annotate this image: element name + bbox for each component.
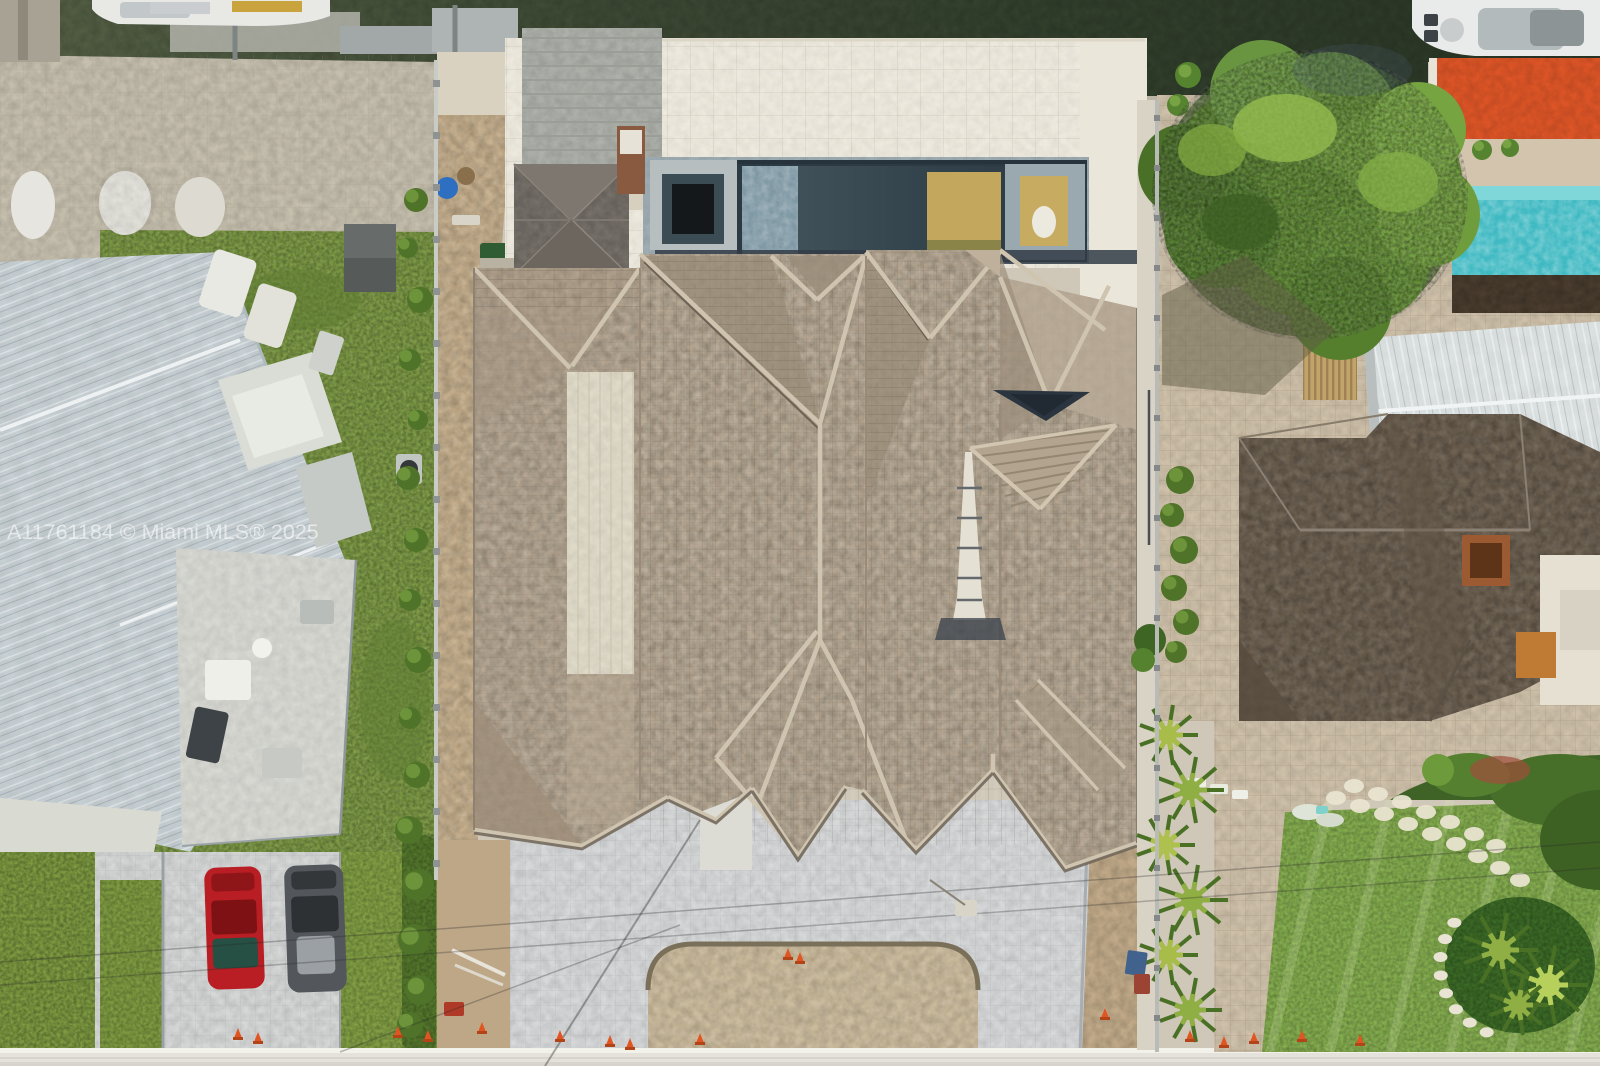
svg-text:A11761184 © Miami MLS® 2025: A11761184 © Miami MLS® 2025 xyxy=(7,520,319,544)
